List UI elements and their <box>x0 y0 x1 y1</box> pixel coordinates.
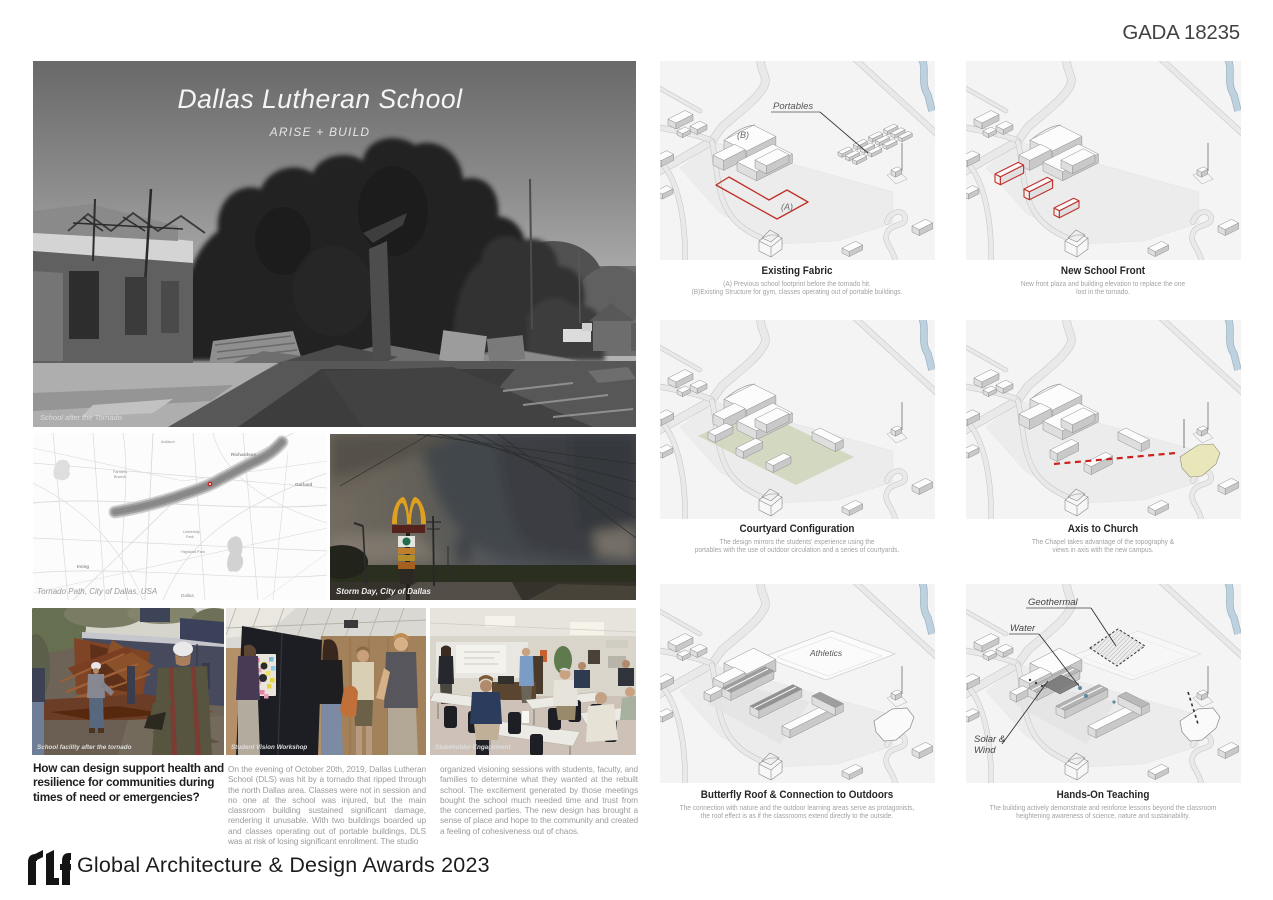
svg-text:ARISE + BUILD: ARISE + BUILD <box>269 125 371 139</box>
svg-text:Portables: Portables <box>773 101 813 112</box>
svg-text:School after the Tornado: School after the Tornado <box>40 413 122 422</box>
svg-text:Richardson: Richardson <box>231 452 256 457</box>
svg-text:Geothermal: Geothermal <box>1028 597 1079 608</box>
svg-text:Addison: Addison <box>161 440 175 444</box>
svg-text:Wind: Wind <box>974 745 996 756</box>
svg-text:Dallas: Dallas <box>181 593 194 598</box>
svg-text:Athletics: Athletics <box>809 648 843 658</box>
svg-text:Solar &: Solar & <box>974 734 1005 745</box>
svg-text:Water: Water <box>1010 623 1036 634</box>
svg-text:Park: Park <box>186 535 194 539</box>
svg-text:Garland: Garland <box>295 482 313 487</box>
svg-text:Branch: Branch <box>114 475 126 479</box>
svg-text:School facility after the torn: School facility after the tornado <box>37 744 132 751</box>
svg-text:Tornado Path, City of Dallas,: Tornado Path, City of Dallas, USA <box>37 587 157 596</box>
svg-text:Dallas Lutheran School: Dallas Lutheran School <box>177 84 463 114</box>
svg-text:Highland Park: Highland Park <box>181 550 205 554</box>
svg-text:Student Vision Workshop: Student Vision Workshop <box>231 744 307 751</box>
svg-text:Irving: Irving <box>77 564 89 569</box>
svg-text:(B): (B) <box>737 130 749 140</box>
svg-text:Storm Day, City of Dallas: Storm Day, City of Dallas <box>336 587 431 596</box>
svg-text:University: University <box>183 530 200 534</box>
svg-text:Stakeholder Engagement: Stakeholder Engagement <box>435 744 511 751</box>
svg-text:(A): (A) <box>781 202 793 212</box>
svg-text:Farmers: Farmers <box>113 470 127 474</box>
